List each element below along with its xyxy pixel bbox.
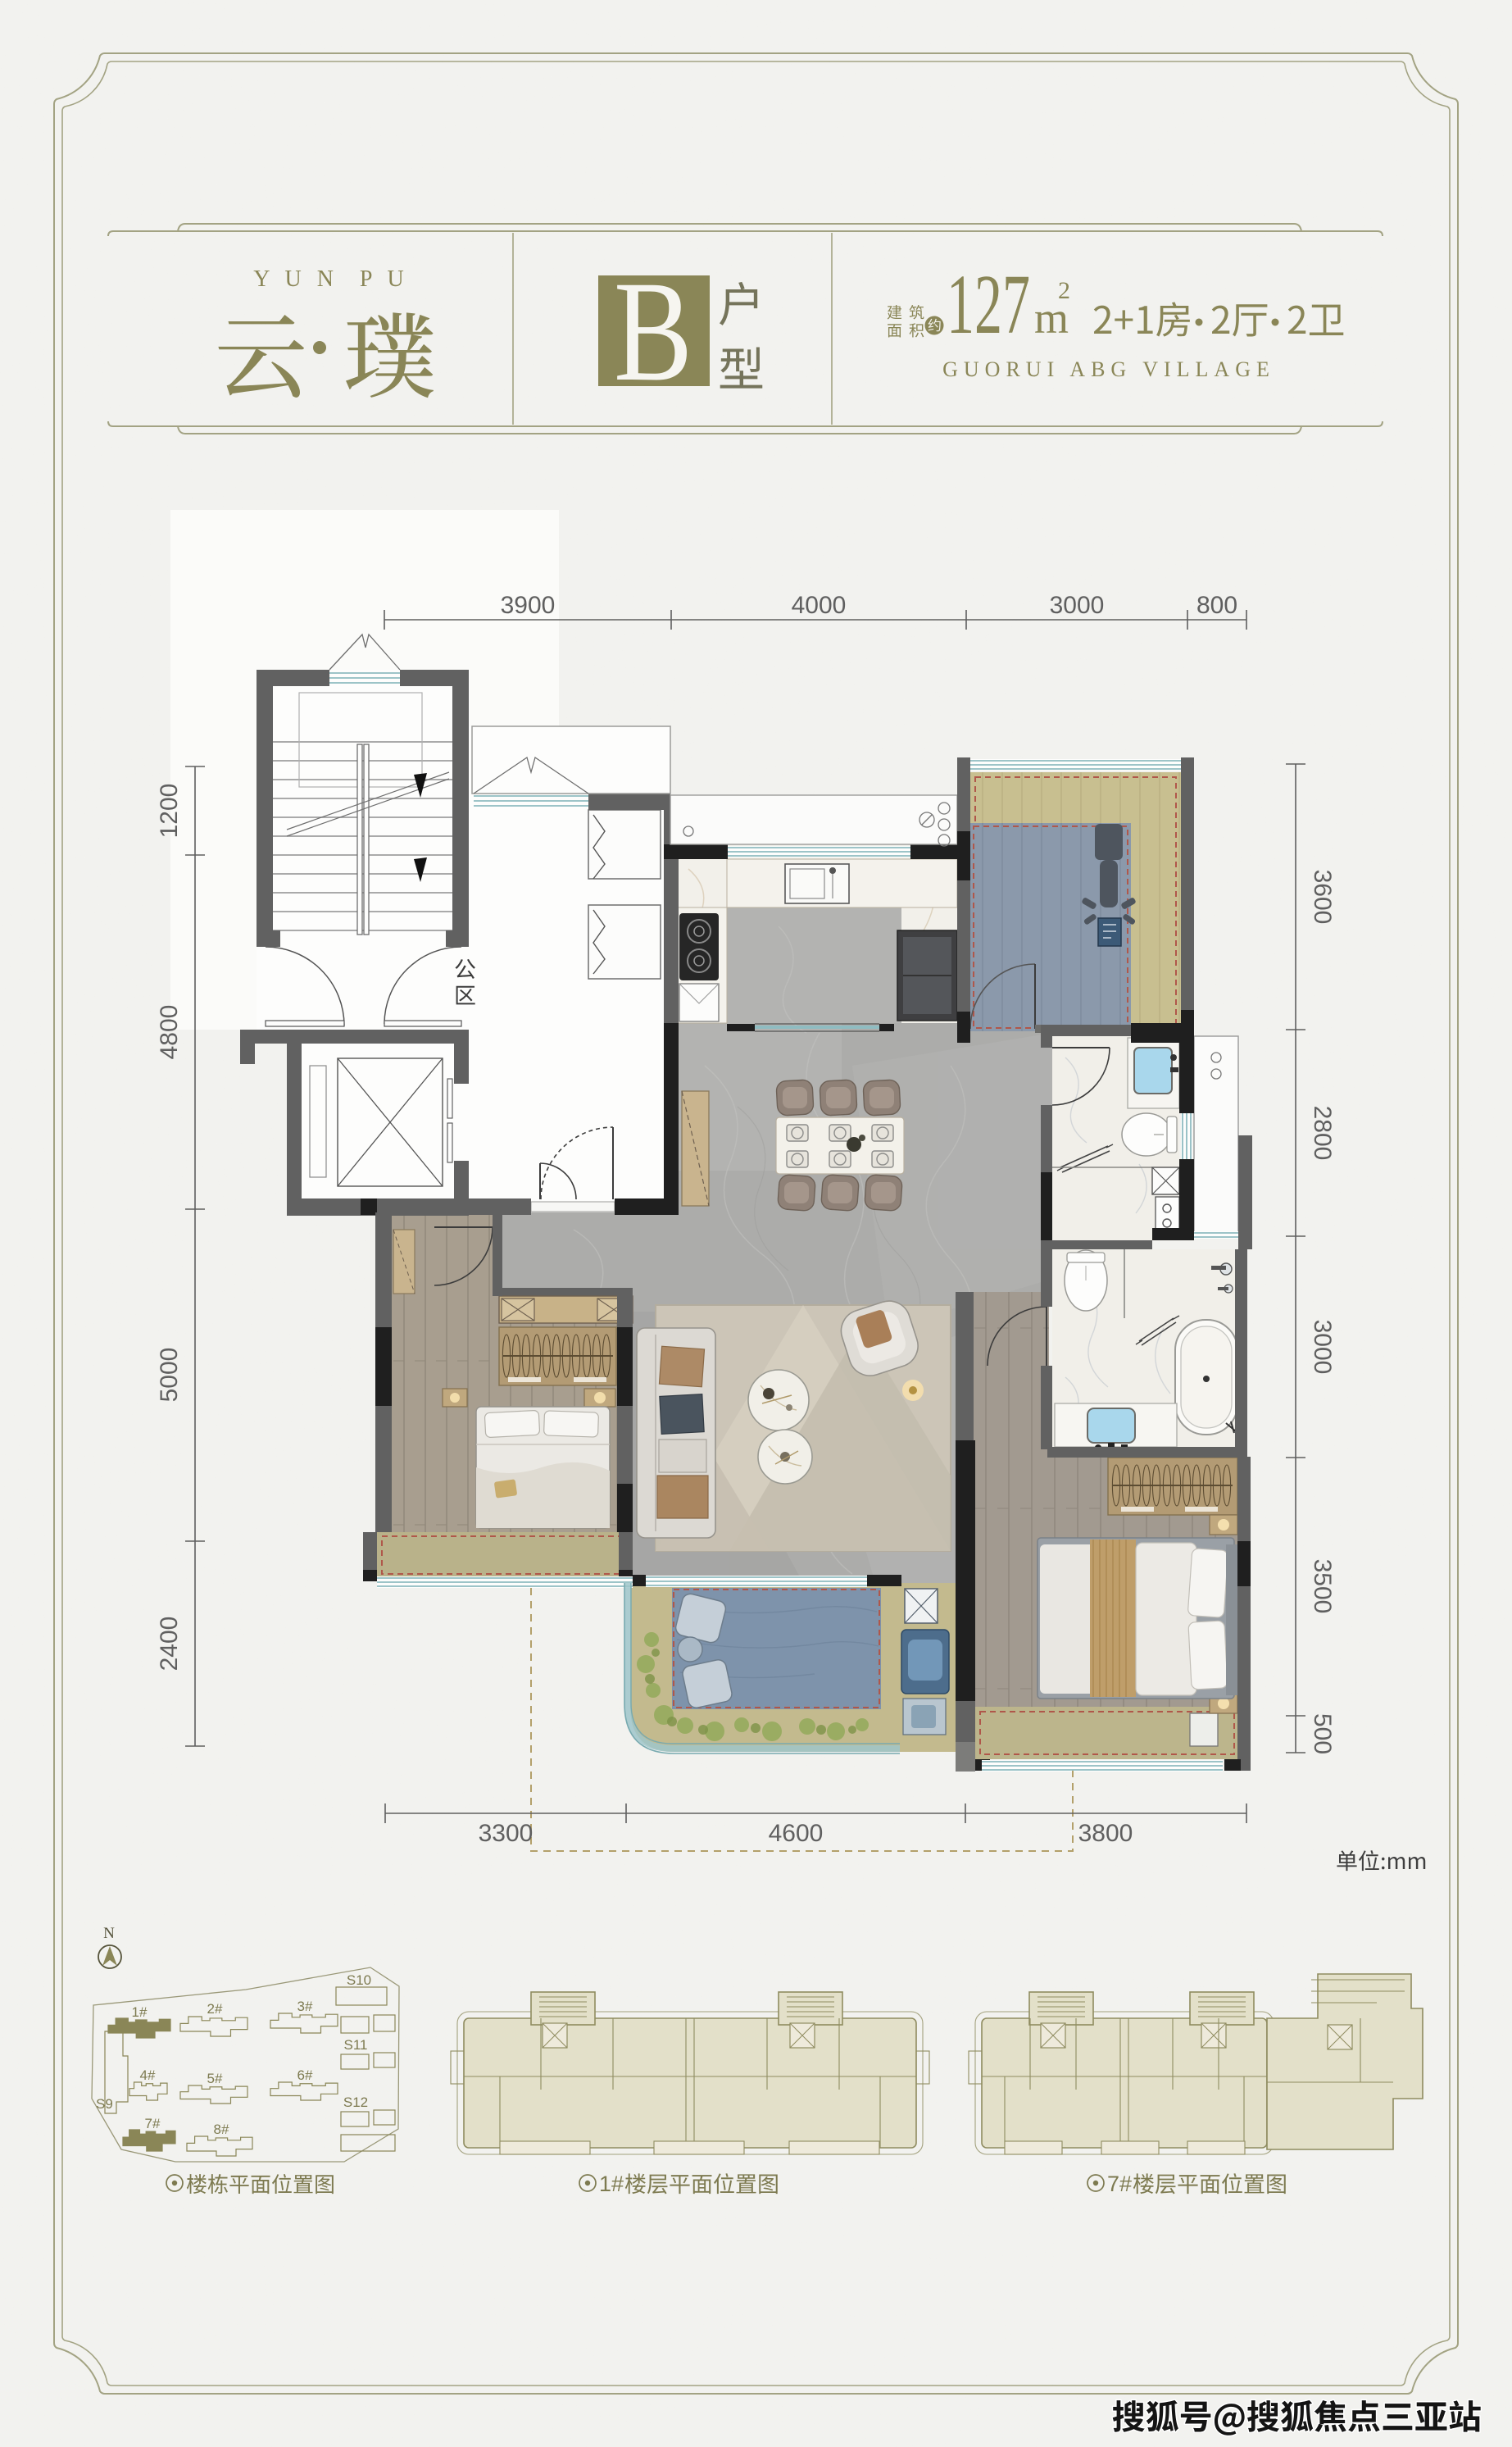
svg-text:800: 800 [1196,592,1237,619]
svg-text:B: B [614,252,692,412]
svg-text:8#: 8# [214,2122,229,2137]
svg-text:S11: S11 [344,2037,368,2053]
svg-text:4600: 4600 [769,1820,824,1847]
svg-text:1200: 1200 [156,784,183,839]
svg-text:S9: S9 [96,2096,113,2112]
svg-text:2#: 2# [207,2001,223,2017]
svg-text:7#: 7# [145,2116,161,2131]
svg-text:3300: 3300 [479,1820,534,1847]
svg-text:1#: 1# [132,2004,148,2020]
svg-text:3800: 3800 [1078,1820,1133,1847]
svg-text:3000: 3000 [1309,1320,1336,1375]
svg-text:3#: 3# [297,1999,313,2014]
svg-text:4800: 4800 [156,1005,183,1060]
svg-text:4000: 4000 [792,592,847,619]
svg-text:500: 500 [1309,1713,1336,1754]
svg-text:GUORUI ABG VILLAGE: GUORUI ABG VILLAGE [942,357,1275,381]
svg-text:3500: 3500 [1309,1559,1336,1614]
svg-text:6#: 6# [297,2067,313,2083]
svg-text:3900: 3900 [501,592,556,619]
svg-text:3600: 3600 [1309,870,1336,925]
svg-text:2400: 2400 [156,1617,183,1672]
svg-text:1#: 1# [599,2172,624,2196]
svg-text:2: 2 [1058,277,1070,304]
svg-text:7#: 7# [1107,2172,1132,2196]
svg-text:3000: 3000 [1050,592,1105,619]
svg-text:N: N [103,1925,115,1942]
svg-text:5000: 5000 [156,1348,183,1403]
svg-text:5#: 5# [207,2071,223,2086]
svg-text:127: 127 [947,257,1030,352]
svg-text:S10: S10 [347,1972,371,1988]
svg-text:S12: S12 [343,2095,368,2110]
svg-text:2800: 2800 [1309,1106,1336,1161]
svg-text:4#: 4# [140,2067,156,2083]
svg-text:Y U N P U: Y U N P U [253,266,408,292]
